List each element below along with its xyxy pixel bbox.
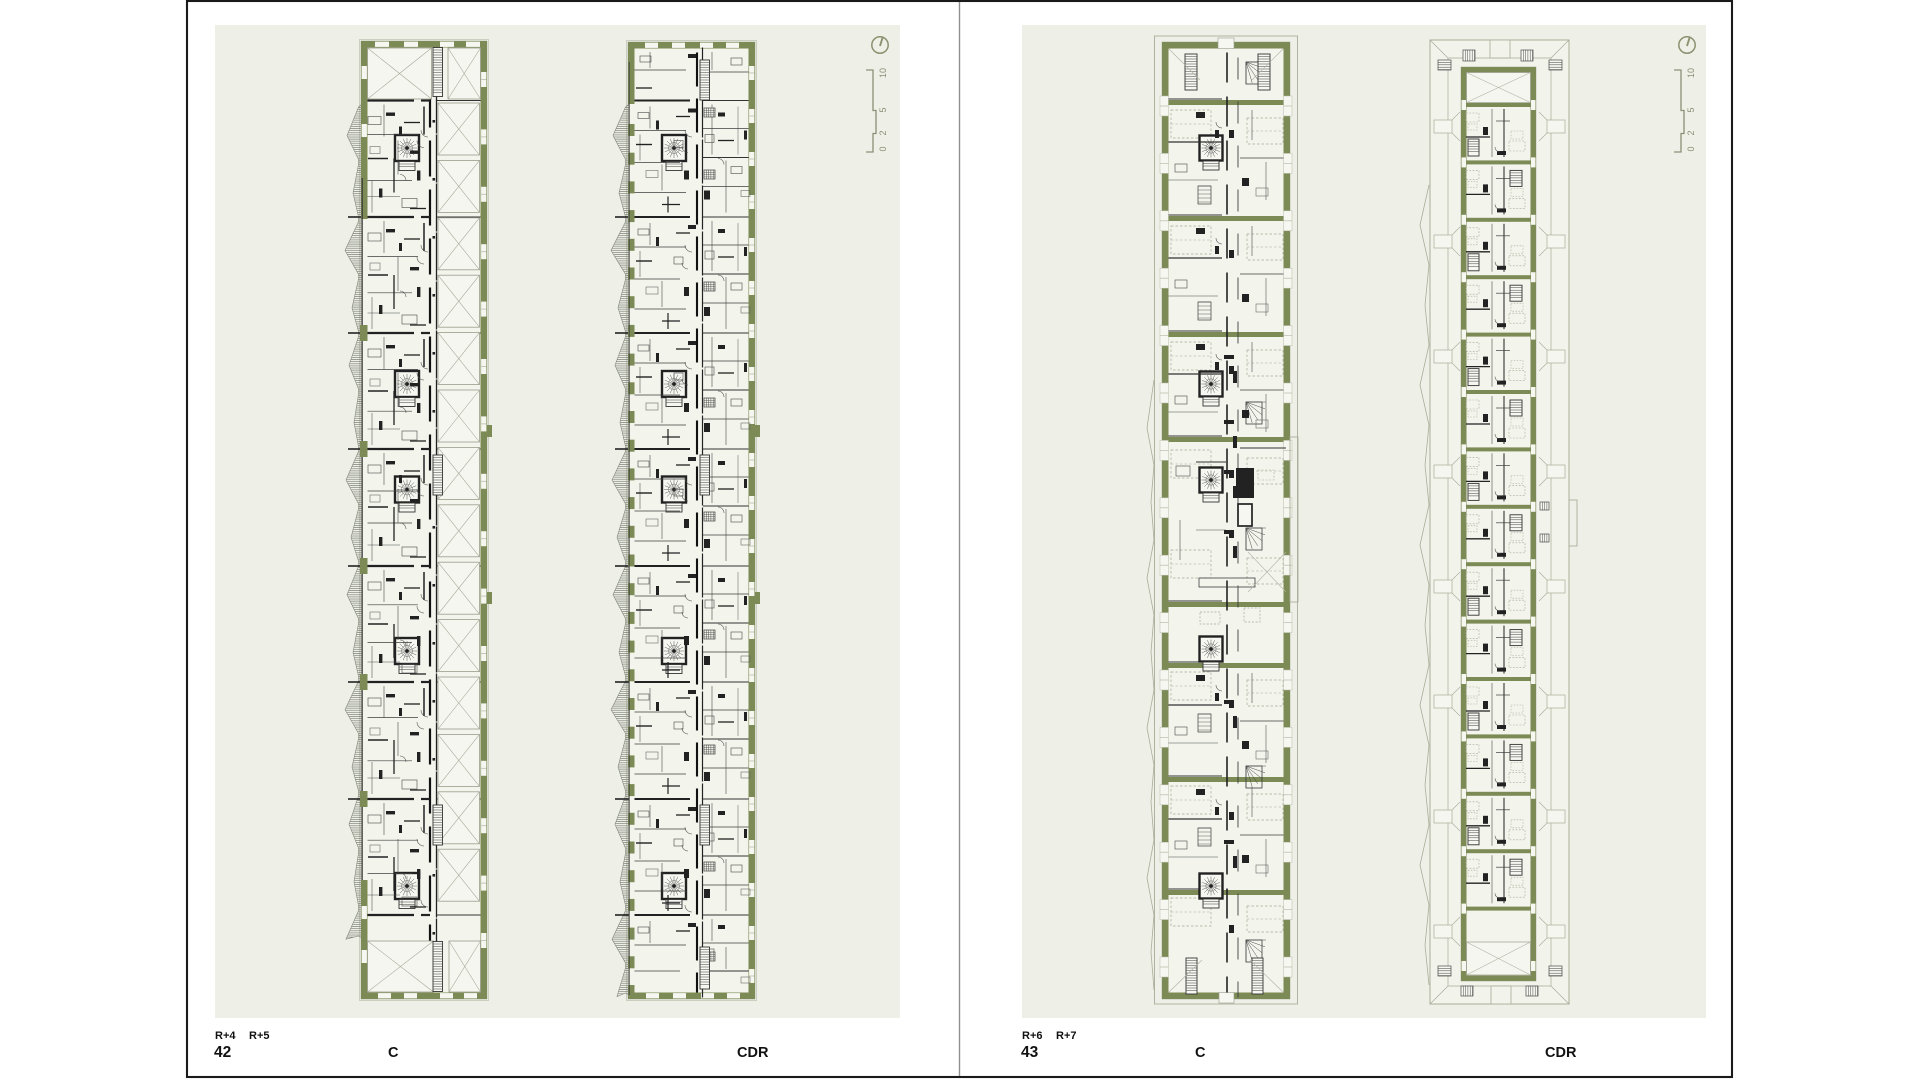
svg-text:42: 42 xyxy=(214,1044,231,1061)
svg-text:C: C xyxy=(388,1045,399,1061)
svg-text:R+6: R+6 xyxy=(1022,1030,1043,1042)
svg-text:C: C xyxy=(1195,1045,1206,1061)
svg-text:0: 0 xyxy=(878,146,888,151)
svg-text:2: 2 xyxy=(1686,130,1696,135)
svg-text:R+5: R+5 xyxy=(249,1030,270,1042)
svg-text:10: 10 xyxy=(878,68,888,78)
svg-text:0: 0 xyxy=(1686,146,1696,151)
svg-text:5: 5 xyxy=(878,107,888,112)
svg-text:10: 10 xyxy=(1686,68,1696,78)
svg-text:R+4: R+4 xyxy=(215,1030,236,1042)
svg-text:43: 43 xyxy=(1021,1044,1039,1061)
svg-text:5: 5 xyxy=(1686,107,1696,112)
svg-text:CDR: CDR xyxy=(737,1045,769,1061)
svg-text:2: 2 xyxy=(878,130,888,135)
svg-text:R+7: R+7 xyxy=(1056,1030,1077,1042)
svg-text:CDR: CDR xyxy=(1545,1045,1577,1061)
